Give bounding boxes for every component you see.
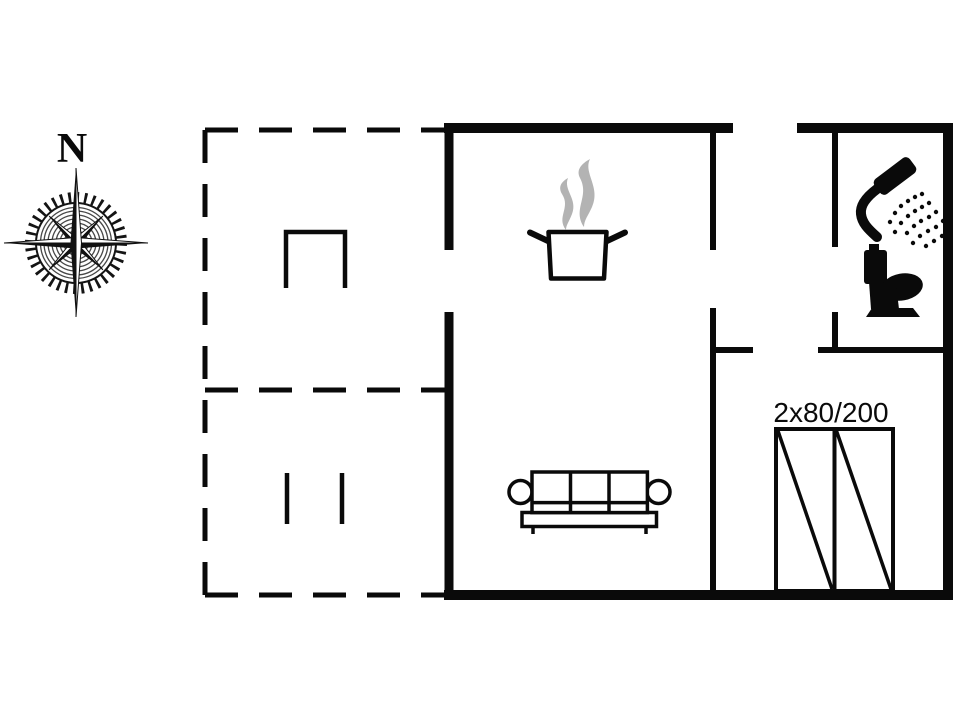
interior-walls <box>713 128 948 595</box>
wardrobe-dimension-label: 2x80/200 <box>773 397 888 428</box>
terrace-outlines <box>205 130 445 595</box>
north-label: N <box>57 126 87 172</box>
compass-cardinal-points <box>4 168 148 317</box>
sofa-back <box>532 472 647 513</box>
floor-plan-drawing: N <box>0 0 960 720</box>
toilet-icon <box>864 244 925 317</box>
sofa-armrest-right <box>647 481 670 504</box>
floor-plan: N <box>0 0 960 720</box>
table-symbol <box>286 232 345 288</box>
sofa-icon <box>509 472 670 534</box>
bench-symbol <box>287 473 342 524</box>
shower-icon <box>861 155 945 248</box>
sofa-armrest-left <box>509 481 532 504</box>
steam-icon <box>560 159 594 230</box>
double-wardrobe-symbol <box>776 429 893 591</box>
compass-rose-icon: N <box>4 126 148 317</box>
cooking-pot-icon <box>530 232 625 279</box>
sofa-base <box>522 513 657 527</box>
shower-spray-droplets <box>888 192 945 248</box>
